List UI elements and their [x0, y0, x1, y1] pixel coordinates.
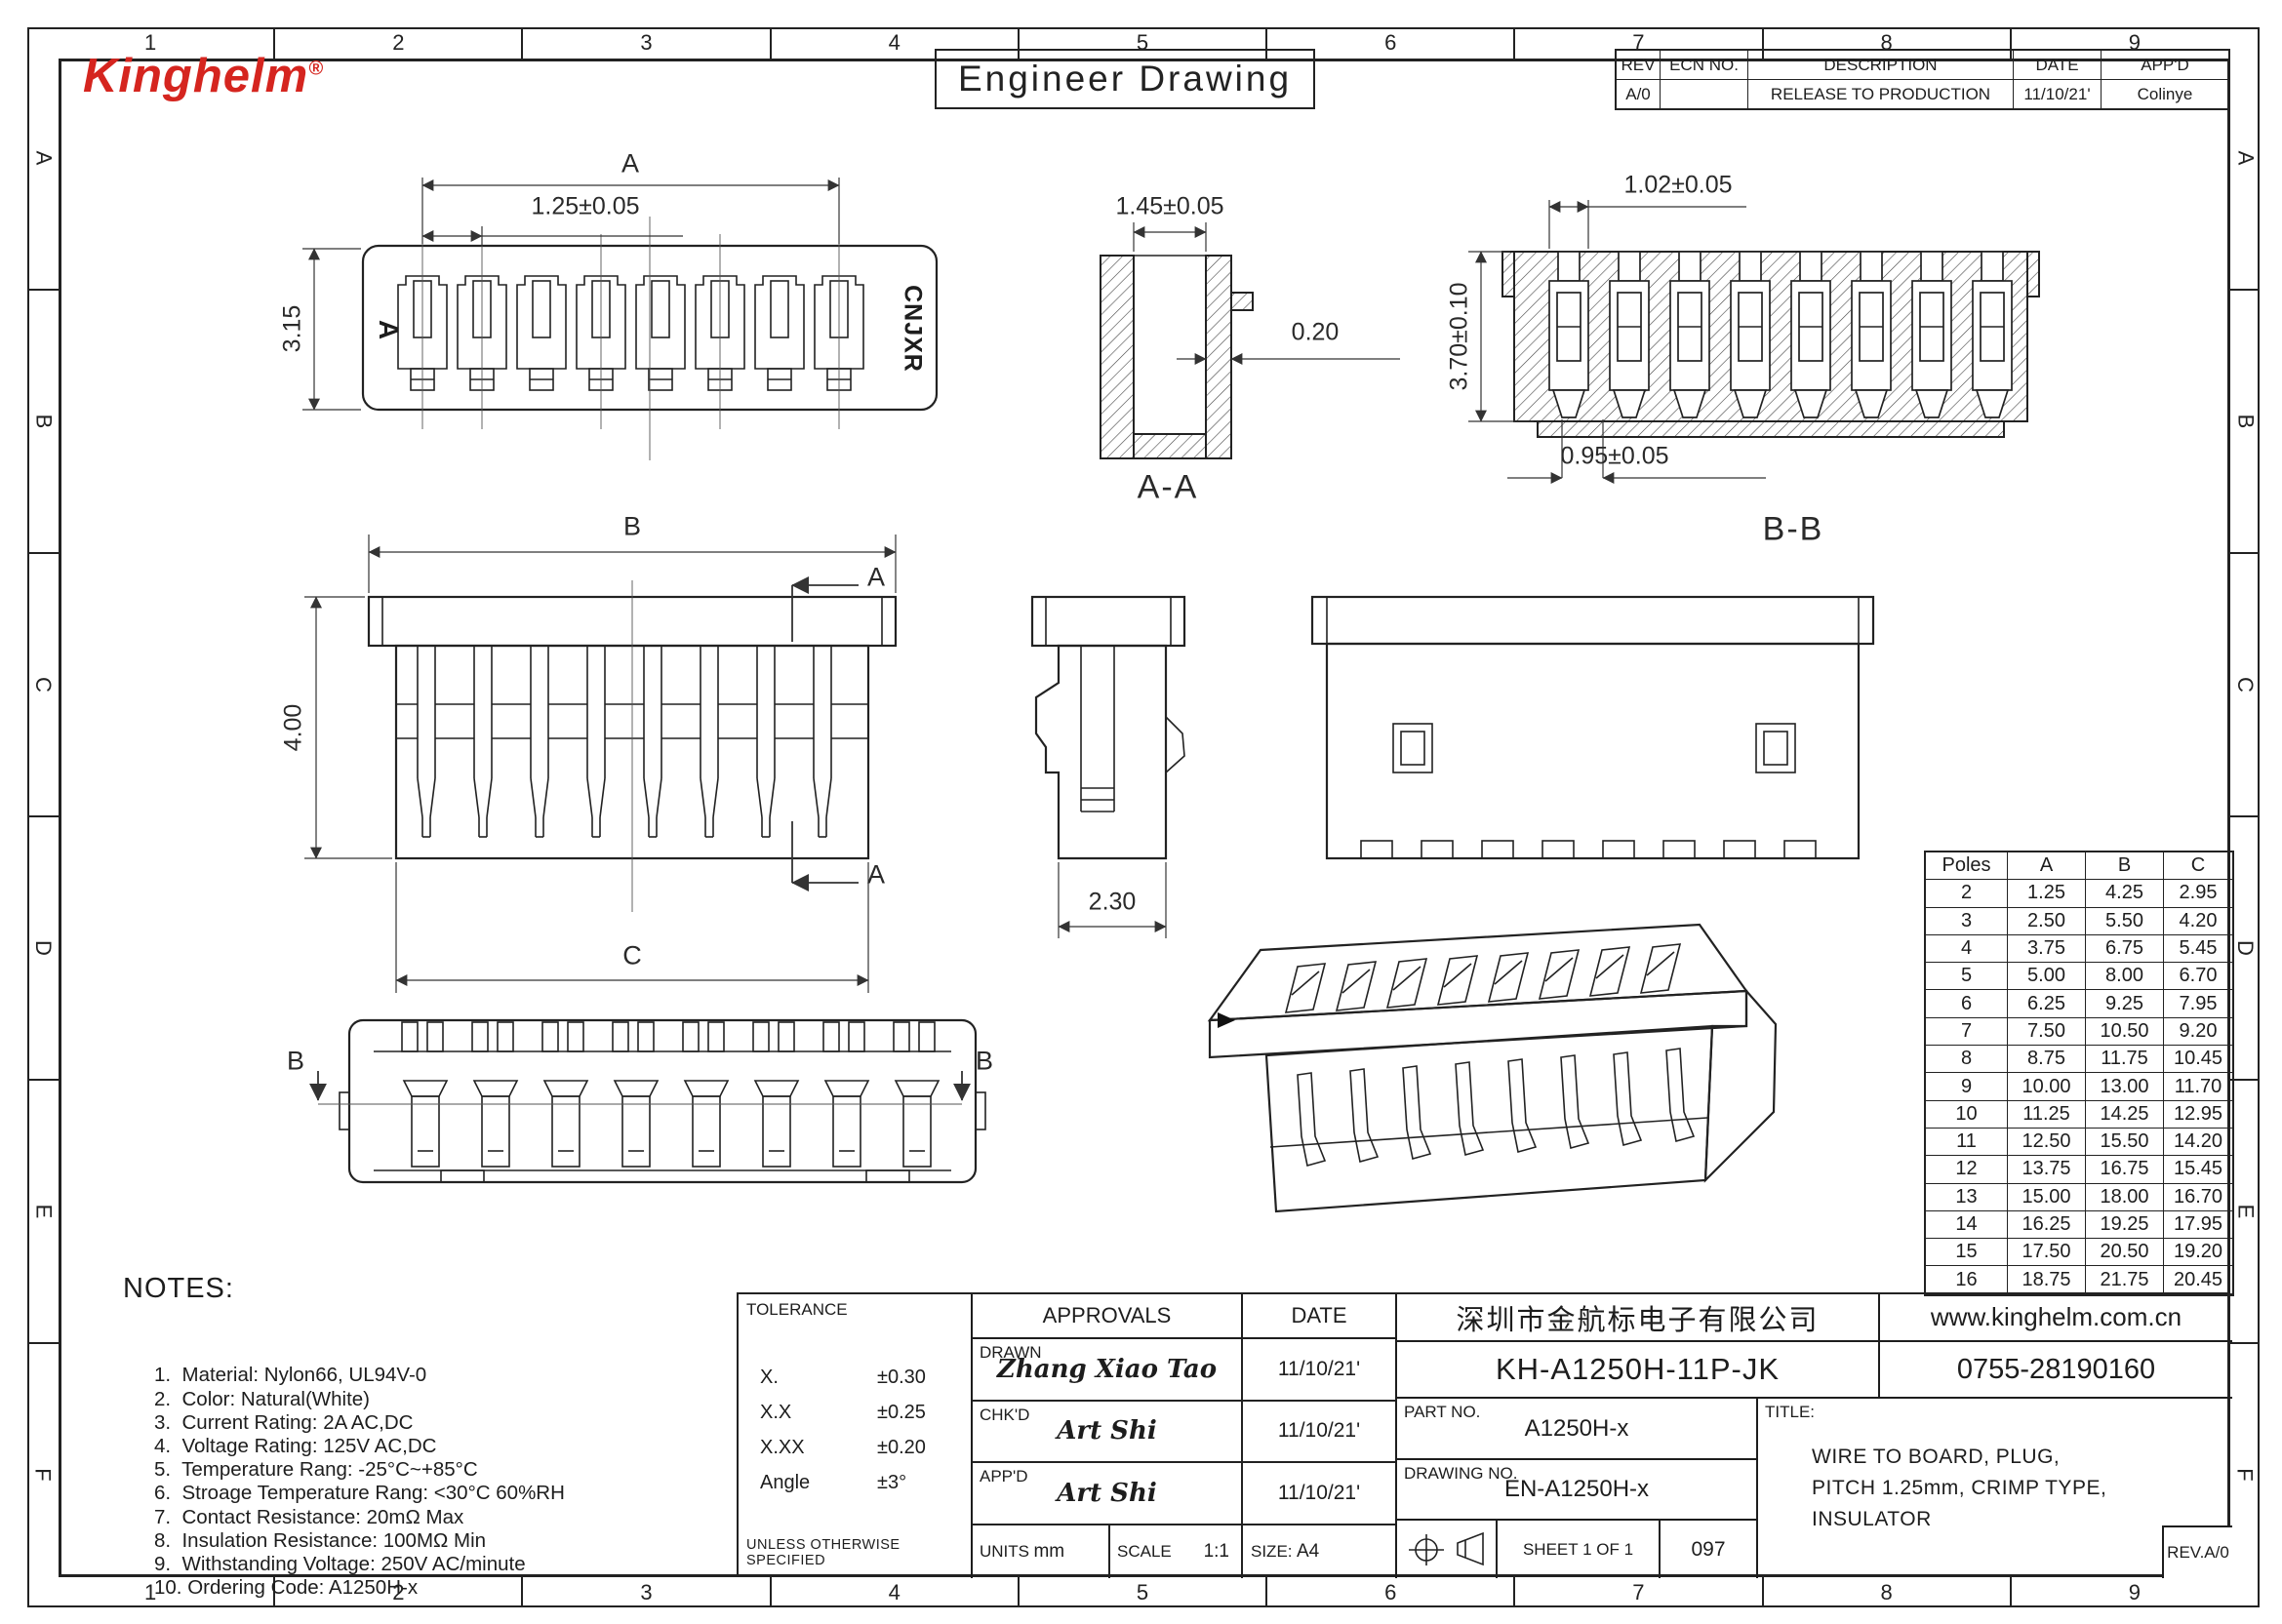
dim-label-c: C	[622, 941, 642, 971]
poles-table-cell: 4.20	[2164, 908, 2232, 935]
scale-value: 1:1	[1204, 1541, 1229, 1563]
units-row: UNITS mm SCALE1:1 SIZE: A4	[973, 1525, 1397, 1578]
phone-number: 0755-28190160	[1880, 1342, 2232, 1399]
note-item: 10. Ordering Code: A1250H-x	[154, 1576, 701, 1600]
connector-marking-cnjxr: CNJXR	[899, 285, 927, 373]
poles-table-cell: 10.50	[2086, 1018, 2164, 1046]
projection-symbol-cell	[1397, 1521, 1498, 1578]
note-item: 3. Current Rating: 2A AC,DC	[154, 1411, 701, 1435]
size-value: A4	[1297, 1541, 1319, 1563]
dim-label-102: 1.02±0.05	[1623, 172, 1732, 200]
poles-table-cell: 15	[1926, 1239, 2008, 1266]
tolerance-title: TOLERANCE	[746, 1300, 848, 1320]
note-item: 8. Insulation Resistance: 100MΩ Min	[154, 1529, 701, 1553]
poles-table-cell: 14.25	[2086, 1101, 2164, 1129]
company-name: 深圳市金航标电子有限公司	[1397, 1294, 1880, 1342]
poles-table-cell: 14	[1926, 1211, 2008, 1239]
polarity-marking-a: A	[373, 320, 404, 339]
poles-table-cell: 5.00	[2008, 963, 2086, 990]
note-item: 5. Temperature Rang: -25°C~+85°C	[154, 1458, 701, 1482]
doc-number: 097	[1661, 1521, 1756, 1578]
company-website: www.kinghelm.com.cn	[1880, 1294, 2232, 1342]
dim-label-pitch: 1.25±0.05	[531, 193, 639, 221]
tolerance-row: Angle±3°	[739, 1472, 973, 1507]
poles-table-cell: 9	[1926, 1073, 2008, 1100]
poles-table-cell: 20.50	[2086, 1239, 2164, 1266]
units-value: mm	[1033, 1541, 1064, 1563]
poles-table-cell: 13.75	[2008, 1156, 2086, 1183]
side-view-drawing	[1032, 597, 1184, 938]
poles-table-cell: 2	[1926, 880, 2008, 907]
section-aa-drawing	[1101, 222, 1400, 458]
note-item: 6. Stroage Temperature Rang: <30°C 60%RH	[154, 1482, 701, 1505]
poles-table-cell: 7.95	[2164, 990, 2232, 1017]
poles-table-cell: 2.95	[2164, 880, 2232, 907]
note-item: 2. Color: Natural(White)	[154, 1388, 701, 1411]
poles-table-cell: 19.20	[2164, 1239, 2232, 1266]
poles-table-cell: 9.20	[2164, 1018, 2232, 1046]
polarity-arrow-icon	[1218, 1012, 1235, 1028]
tolerance-rows: X.±0.30X.X±0.25X.XX±0.20Angle±3°	[739, 1367, 973, 1507]
poles-table-cell: 4.25	[2086, 880, 2164, 907]
poles-table-cell: 11.70	[2164, 1073, 2232, 1100]
section-bb-drawing	[1468, 200, 2039, 478]
bottom-view-drawing	[318, 1020, 985, 1182]
note-item: 4. Voltage Rating: 125V AC,DC	[154, 1435, 701, 1458]
dim-label-overall-a: A	[621, 149, 639, 179]
note-item: 9. Withstanding Voltage: 250V AC/minute	[154, 1553, 701, 1576]
poles-table-cell: 11.25	[2008, 1101, 2086, 1129]
poles-table-cell: 12.50	[2008, 1129, 2086, 1156]
dim-label-b: B	[623, 512, 641, 542]
tolerance-cell: TOLERANCE X.±0.30X.X±0.25X.XX±0.20Angle±…	[739, 1294, 973, 1578]
notes-list: 1. Material: Nylon66, UL94V-02. Color: N…	[154, 1317, 701, 1624]
part-code: KH-A1250H-11P-JK	[1397, 1342, 1880, 1399]
poles-table-cell: 18.00	[2086, 1184, 2164, 1211]
poles-table-cell: 16	[1926, 1266, 2008, 1293]
title-label: TITLE:	[1765, 1403, 1815, 1422]
poles-table-cell: 20.45	[2164, 1266, 2232, 1293]
dim-label-height-315: 3.15	[279, 305, 307, 353]
scale-label: SCALE	[1117, 1542, 1172, 1562]
note-item: 7. Contact Resistance: 20mΩ Max	[154, 1506, 701, 1529]
poles-table-cell: 21.75	[2086, 1266, 2164, 1293]
size-label: SIZE:	[1251, 1542, 1293, 1562]
poles-table-cell: 8.75	[2008, 1046, 2086, 1073]
title-block: TOLERANCE X.±0.30X.X±0.25X.XX±0.20Angle±…	[737, 1292, 2230, 1576]
poles-table-cell: 1.25	[2008, 880, 2086, 907]
sheet-row: SHEET 1 OF 1 097	[1397, 1521, 1758, 1578]
section-bb-label: B-B	[1763, 511, 1824, 549]
poles-table-cell: 10.45	[2164, 1046, 2232, 1073]
poles-table-cell: 19.25	[2086, 1211, 2164, 1239]
poles-table-cell: 16.25	[2008, 1211, 2086, 1239]
poles-table-cell: 11.75	[2086, 1046, 2164, 1073]
approval-row: CHK'DArt Shi 11/10/21'	[973, 1402, 1395, 1464]
date-header: DATE	[1243, 1294, 1397, 1339]
side-view-plain-drawing	[1312, 597, 1873, 858]
part-no-cell: PART NO. A1250H-x	[1397, 1399, 1758, 1460]
poles-table-cell: 17.95	[2164, 1211, 2232, 1239]
poles-table-cell: 18.75	[2008, 1266, 2086, 1293]
note-item: 1. Material: Nylon66, UL94V-0	[154, 1364, 701, 1387]
scale-cell: SCALE1:1	[1110, 1525, 1243, 1578]
dim-label-095: 0.95±0.05	[1560, 443, 1668, 471]
poles-table-cell: 16.70	[2164, 1184, 2232, 1211]
cut-label-a-top: A	[867, 563, 885, 593]
poles-table-cell: 5.45	[2164, 935, 2232, 963]
title-line: INSULATOR	[1812, 1504, 2106, 1535]
poles-table-cell: 15.50	[2086, 1129, 2164, 1156]
title-line: PITCH 1.25mm, CRIMP TYPE,	[1812, 1473, 2106, 1504]
dim-label-370: 3.70±0.10	[1446, 282, 1474, 390]
poles-table-cell: 5.50	[2086, 908, 2164, 935]
poles-table-cell: 11	[1926, 1129, 2008, 1156]
poles-table-cell: 13	[1926, 1184, 2008, 1211]
dim-label-145: 1.45±0.05	[1115, 193, 1223, 221]
poles-table-cell: 2.50	[2008, 908, 2086, 935]
cut-label-b-left: B	[287, 1047, 304, 1077]
poles-table-cell: 6.75	[2086, 935, 2164, 963]
tolerance-row: X.±0.30	[739, 1367, 973, 1402]
tolerance-row: X.X±0.25	[739, 1402, 973, 1437]
col-c-header: C	[2164, 852, 2232, 880]
col-a-header: A	[2008, 852, 2086, 880]
poles-table-cell: 17.50	[2008, 1239, 2086, 1266]
approval-row: DRAWNZhang Xiao Tao 11/10/21'	[973, 1339, 1395, 1402]
title-lines: WIRE TO BOARD, PLUG,PITCH 1.25mm, CRIMP …	[1812, 1442, 2106, 1535]
poles-table-cell: 14.20	[2164, 1129, 2232, 1156]
part-no-label: PART NO.	[1404, 1403, 1480, 1422]
poles-dimension-table: Poles A B C 21.254.252.9532.505.504.2043…	[1924, 851, 2234, 1296]
poles-table-cell: 8	[1926, 1046, 2008, 1073]
size-cell: SIZE: A4	[1243, 1525, 1395, 1578]
poles-header: Poles	[1926, 852, 2008, 880]
cut-label-a-bottom: A	[867, 860, 885, 891]
poles-table-cell: 8.00	[2086, 963, 2164, 990]
poles-table-cell: 4	[1926, 935, 2008, 963]
poles-table-cell: 5	[1926, 963, 2008, 990]
title-line: WIRE TO BOARD, PLUG,	[1812, 1442, 2106, 1473]
poles-table-cell: 7.50	[2008, 1018, 2086, 1046]
tolerance-footnote: UNLESS OTHERWISE SPECIFIED	[746, 1537, 971, 1568]
poles-table-cell: 6.70	[2164, 963, 2232, 990]
isometric-view-drawing	[1210, 925, 1776, 1211]
poles-table-cell: 15.00	[2008, 1184, 2086, 1211]
approval-row: APP'DArt Shi 11/10/21'	[973, 1463, 1395, 1525]
poles-table-cell: 6.25	[2008, 990, 2086, 1017]
approvals-rows: DRAWNZhang Xiao Tao 11/10/21' CHK'DArt S…	[973, 1339, 1397, 1525]
drawing-no-cell: DRAWING NO. EN-A1250H-x	[1397, 1460, 1758, 1521]
poles-table-cell: 10.00	[2008, 1073, 2086, 1100]
poles-table-cell: 13.00	[2086, 1073, 2164, 1100]
col-b-header: B	[2086, 852, 2164, 880]
poles-table-cell: 16.75	[2086, 1156, 2164, 1183]
engineering-drawing-sheet: { "page": { "logo_text": "Kinghelm", "lo…	[0, 0, 2282, 1612]
tolerance-row: X.XX±0.20	[739, 1437, 973, 1472]
section-aa-label: A-A	[1138, 469, 1199, 507]
poles-table-cell: 7	[1926, 1018, 2008, 1046]
dim-label-020: 0.20	[1292, 319, 1340, 347]
poles-table-cell: 10	[1926, 1101, 2008, 1129]
dim-label-230: 2.30	[1089, 889, 1137, 917]
poles-table-cell: 3.75	[2008, 935, 2086, 963]
poles-table-cell: 12.95	[2164, 1101, 2232, 1129]
poles-table-cell: 15.45	[2164, 1156, 2232, 1183]
poles-table-cell: 9.25	[2086, 990, 2164, 1017]
poles-table-cell: 3	[1926, 908, 2008, 935]
notes-title: NOTES:	[123, 1273, 234, 1305]
rev-badge: REV.A/0	[2162, 1525, 2232, 1578]
cut-label-b-right: B	[976, 1047, 993, 1077]
sheet-count: SHEET 1 OF 1	[1498, 1521, 1661, 1578]
dim-label-400: 4.00	[280, 704, 308, 752]
drawing-no-label: DRAWING NO.	[1404, 1464, 1517, 1484]
units-cell: UNITS mm	[973, 1525, 1110, 1578]
front-view-drawing	[304, 535, 896, 993]
approvals-header: APPROVALS	[973, 1294, 1243, 1339]
poles-table-cell: 6	[1926, 990, 2008, 1017]
poles-table-cell: 12	[1926, 1156, 2008, 1183]
units-label: UNITS	[980, 1542, 1029, 1562]
